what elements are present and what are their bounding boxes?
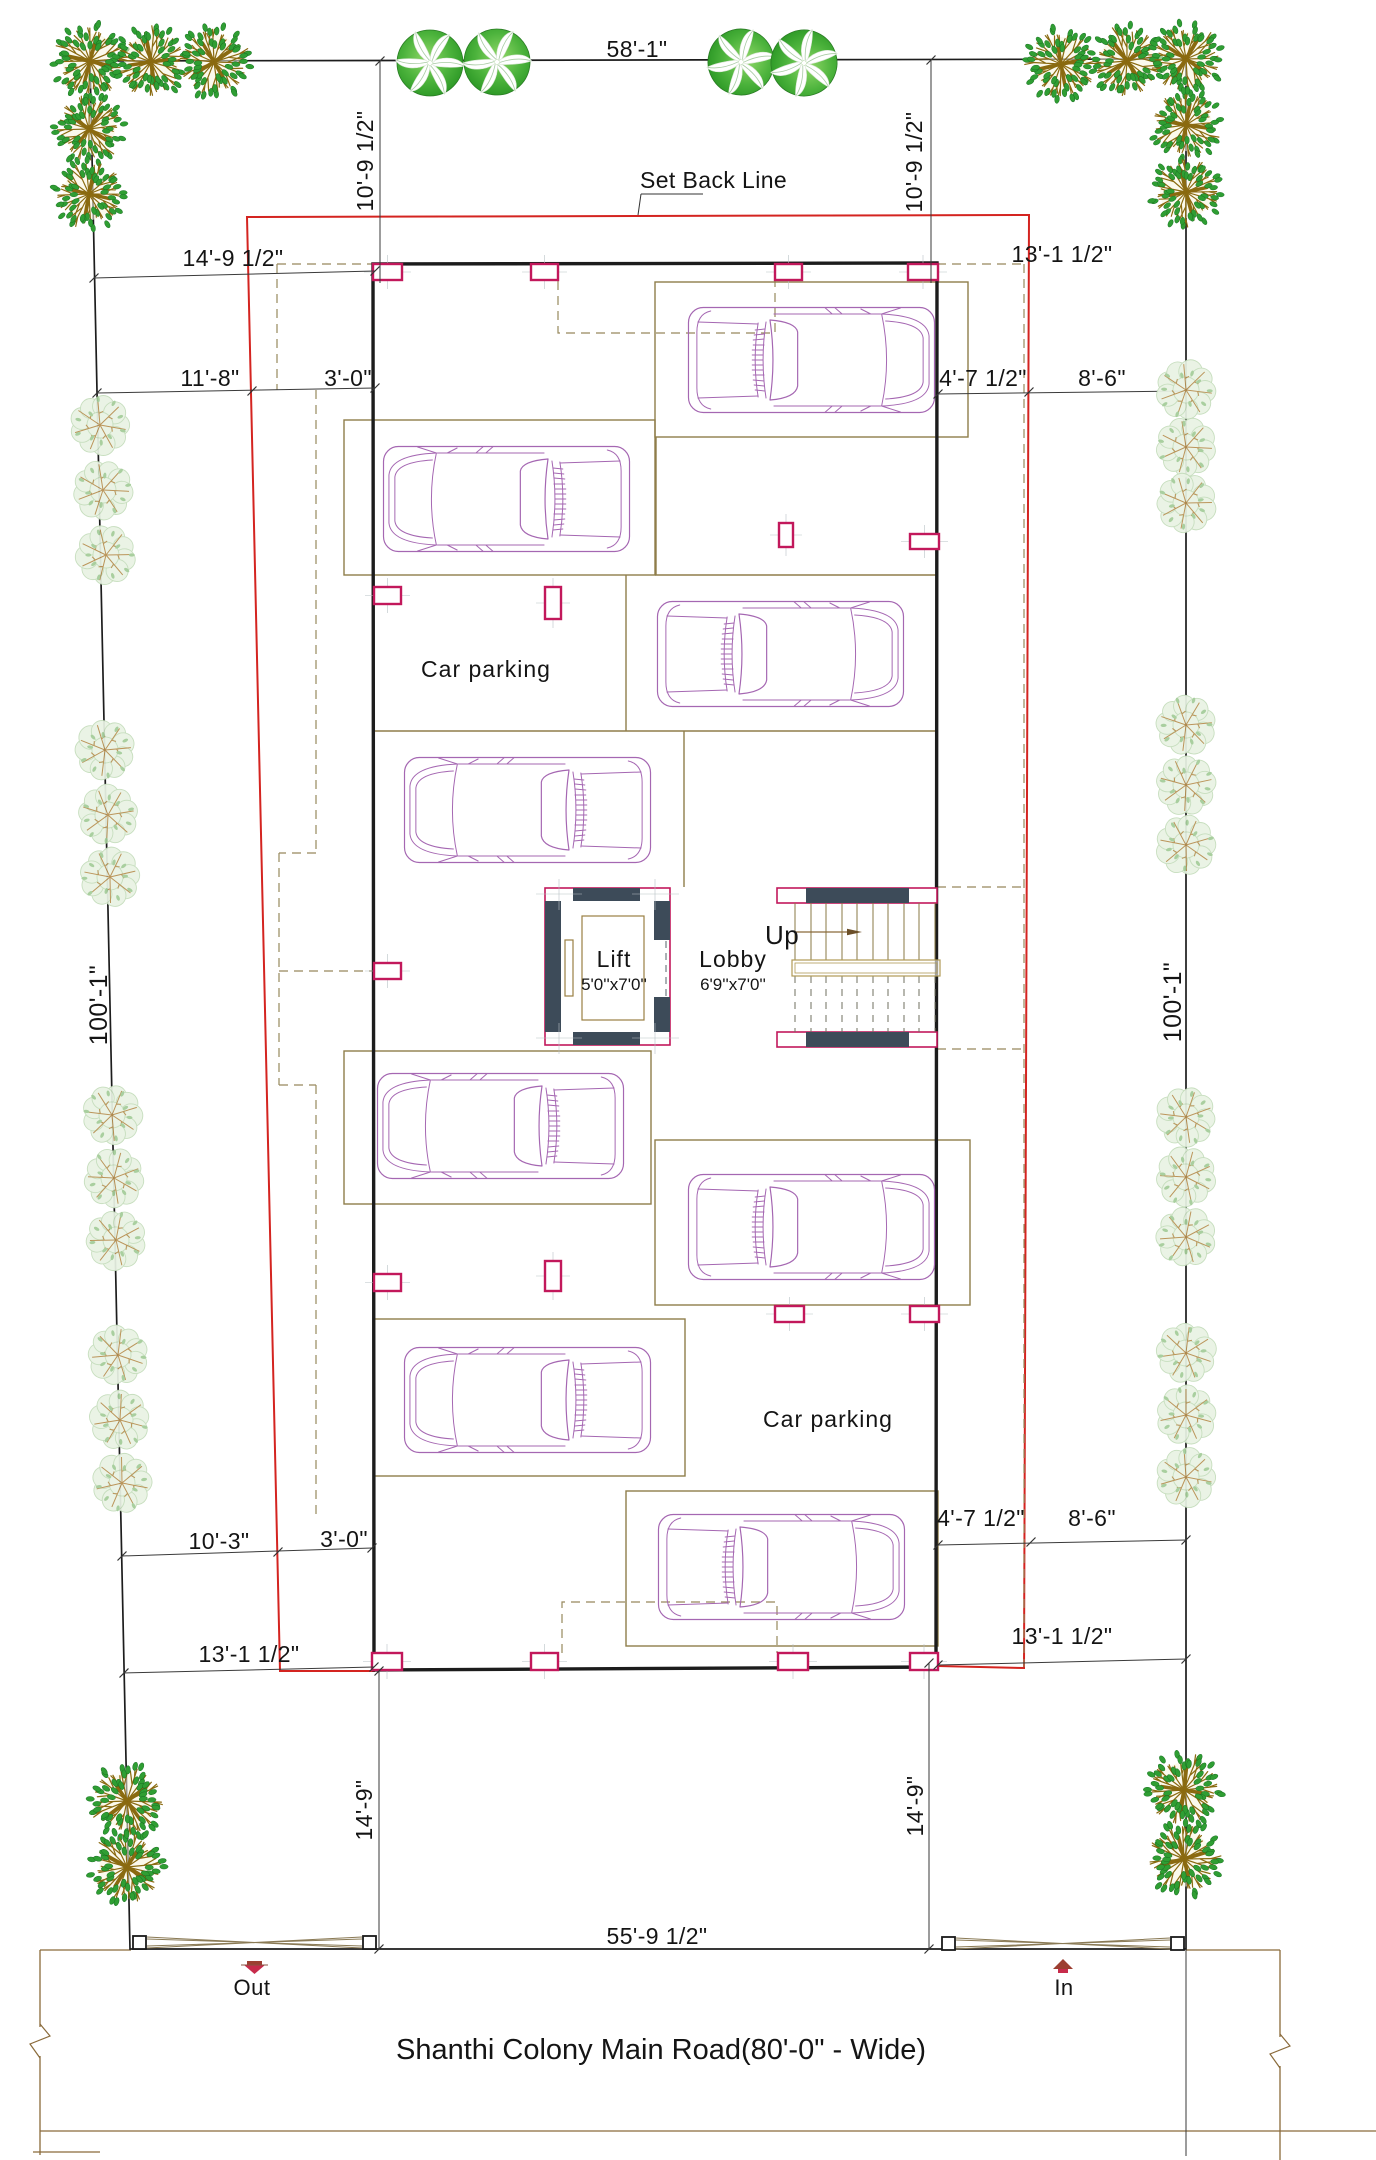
svg-text:8'-6": 8'-6": [1078, 365, 1126, 391]
svg-text:Lift: Lift: [597, 946, 632, 972]
svg-text:Car parking: Car parking: [421, 656, 551, 682]
svg-text:10'-3": 10'-3": [189, 1528, 250, 1554]
svg-text:3'-0": 3'-0": [324, 365, 372, 391]
svg-text:13'-1 1/2": 13'-1 1/2": [199, 1641, 300, 1667]
svg-text:100'-1": 100'-1": [1159, 962, 1187, 1042]
svg-text:3'-0": 3'-0": [320, 1526, 368, 1552]
svg-text:58'-1": 58'-1": [607, 36, 668, 62]
svg-text:100'-1": 100'-1": [85, 965, 113, 1045]
svg-text:Set Back Line: Set Back Line: [640, 167, 787, 193]
svg-text:4'-7 1/2": 4'-7 1/2": [939, 365, 1027, 391]
svg-text:13'-1 1/2": 13'-1 1/2": [1012, 1623, 1113, 1649]
svg-text:14'-9 1/2": 14'-9 1/2": [183, 245, 284, 271]
svg-text:Car parking: Car parking: [763, 1406, 893, 1432]
svg-text:10'-9 1/2": 10'-9 1/2": [352, 111, 378, 212]
svg-text:11'-8": 11'-8": [180, 365, 239, 391]
svg-text:14'-9": 14'-9": [351, 1780, 377, 1841]
svg-text:Out: Out: [234, 1975, 271, 2000]
svg-text:In: In: [1054, 1975, 1073, 2000]
svg-text:8'-6": 8'-6": [1068, 1505, 1116, 1531]
svg-text:14'-9": 14'-9": [902, 1776, 928, 1837]
svg-text:Shanthi Colony Main Road(80'-0: Shanthi Colony Main Road(80'-0" - Wide): [396, 2034, 926, 2066]
svg-text:10'-9 1/2": 10'-9 1/2": [901, 112, 927, 213]
svg-text:6'9''x7'0'': 6'9''x7'0'': [700, 975, 766, 994]
svg-text:13'-1 1/2": 13'-1 1/2": [1012, 241, 1113, 267]
svg-text:Lobby: Lobby: [699, 946, 767, 972]
svg-text:Up: Up: [765, 920, 799, 950]
svg-text:4'-7 1/2": 4'-7 1/2": [937, 1505, 1025, 1531]
svg-text:5'0''x7'0'': 5'0''x7'0'': [581, 975, 647, 994]
svg-text:55'-9 1/2": 55'-9 1/2": [607, 1923, 708, 1949]
